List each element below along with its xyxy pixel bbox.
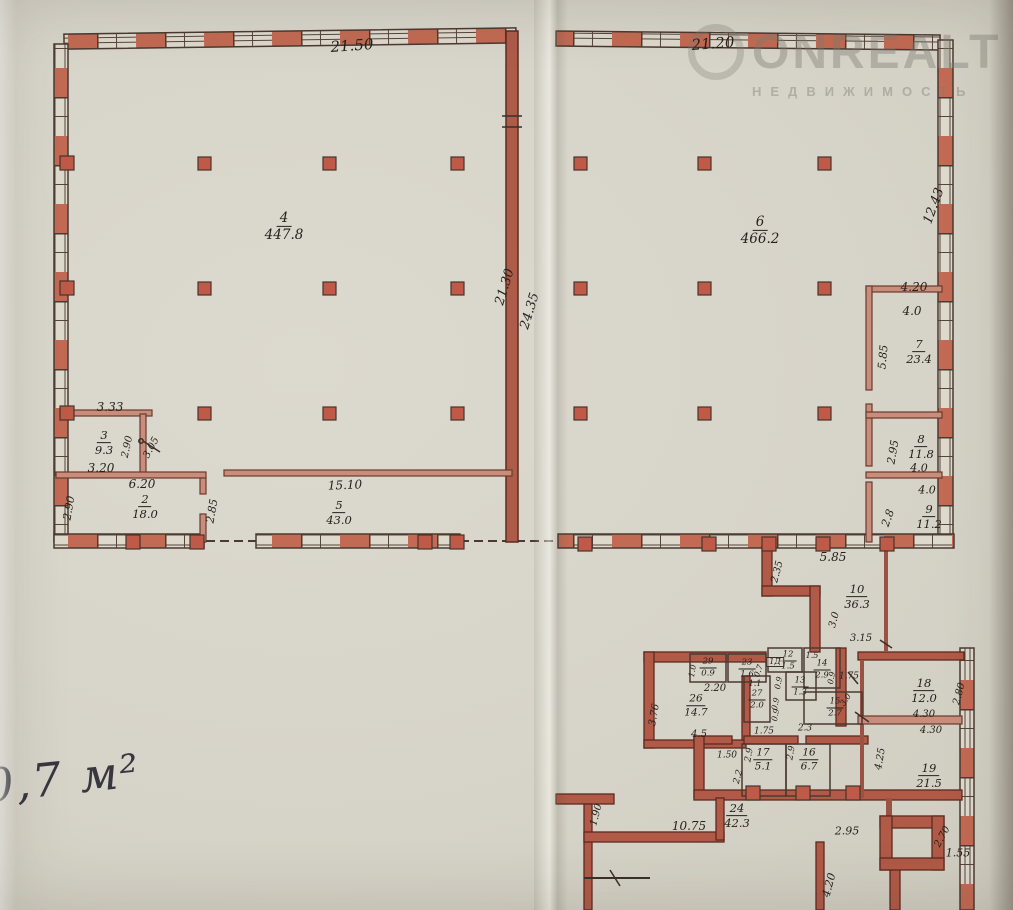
room-label-29: 290.9 (700, 657, 717, 678)
room-label-9: 911.2 (916, 503, 942, 531)
dimension-label: 4.30 (913, 710, 935, 720)
dimension-label: 21.30 (493, 267, 516, 306)
dimension-label: 1.75 (754, 728, 774, 737)
dimension-label: 0.9 (827, 671, 837, 685)
room-label-17: 175.1 (753, 747, 772, 773)
dimension-label: 1.5 (806, 652, 819, 660)
room-label-27: 272.0 (749, 689, 766, 710)
dimension-label: 2.2 (733, 769, 745, 785)
dimension-label: 3.05 (142, 436, 161, 460)
dimension-label: 4.0 (910, 463, 928, 474)
room-label-4: 4447.8 (265, 211, 304, 243)
room-label-5: 543.0 (326, 499, 352, 527)
dimension-label: 1.90 (589, 803, 604, 827)
dimension-label: 0.9 (771, 708, 781, 722)
room-label-10: 1036.3 (844, 583, 870, 611)
dimension-label: 12.43 (922, 186, 947, 225)
dimension-label: 5.85 (820, 551, 847, 563)
paper-left-edge-highlight (0, 0, 16, 910)
dimension-label: 4.5 (691, 730, 707, 740)
dimension-label: 3.33 (97, 401, 124, 413)
room-label-6: 6466.2 (741, 215, 780, 247)
dimension-label: 2.85 (204, 498, 219, 524)
room-label-8: 811.8 (908, 433, 934, 461)
dimension-label: 6.20 (129, 478, 156, 490)
dimension-label: 0.7 (753, 664, 765, 679)
room-label-16: 166.7 (799, 747, 818, 773)
dimension-label: 4.0 (902, 305, 921, 317)
room-label-26: 2614.7 (684, 693, 707, 719)
dimension-label: 3.0 (828, 611, 842, 629)
dimension-label: 2.95 (885, 439, 900, 465)
dimension-label: 4.20 (821, 872, 838, 899)
dimension-label: 1.75 (839, 673, 859, 682)
dimension-label: 4.30 (920, 726, 942, 736)
room-label-18: 1812.0 (911, 677, 937, 705)
room-label-3: 39.3 (95, 429, 113, 457)
dimension-label: 1.55 (946, 848, 971, 859)
dimension-label: 2.35 (770, 560, 785, 584)
dimension-label: 1.50 (717, 752, 737, 761)
room-label-23: 231.6 (739, 658, 756, 679)
room-label-7: 723.4 (906, 338, 932, 366)
dimension-label: 2.80 (952, 682, 967, 706)
room-label-19: 1921.5 (916, 762, 942, 790)
dimension-label: 2.90 (121, 435, 135, 459)
room-label-24: 2442.3 (724, 802, 750, 830)
floor-plan-scan: { "document": { "handwritten_note": "0,7… (0, 0, 1013, 910)
dimension-label: 3.76 (648, 703, 662, 727)
dimension-label: 1.0 (688, 664, 698, 678)
dimension-label: 2.20 (704, 684, 726, 694)
dimension-label: 0.9 (774, 676, 784, 690)
dimension-label: 21.20 (691, 35, 735, 53)
dimension-label: 1.1 (749, 680, 762, 688)
dimension-label: 2.9 (786, 745, 797, 761)
room-label-13: 131.3 (792, 676, 809, 697)
room-label-2: 218.0 (132, 493, 158, 521)
page-fold-seam (534, 0, 568, 910)
dimension-label: 2.90 (61, 495, 76, 521)
dimension-label: 2.3 (798, 725, 812, 734)
dimension-label: 4.25 (874, 747, 888, 771)
dimension-label: 3.20 (88, 462, 115, 474)
dimension-label: 2.8 (880, 508, 896, 528)
dimension-label: 2.95 (835, 826, 860, 837)
dimension-label: 4.0 (918, 485, 936, 496)
dimension-label: 1Д (766, 657, 784, 667)
dimension-label: 3.15 (850, 634, 872, 644)
dimension-label: 10.75 (672, 820, 706, 832)
paper-right-edge-shadow (989, 0, 1013, 910)
dimension-label: 21.50 (330, 37, 374, 55)
dimension-label: 5.85 (876, 344, 889, 369)
dimension-label: 15.10 (328, 478, 363, 491)
dimension-label: 4.20 (901, 281, 928, 293)
